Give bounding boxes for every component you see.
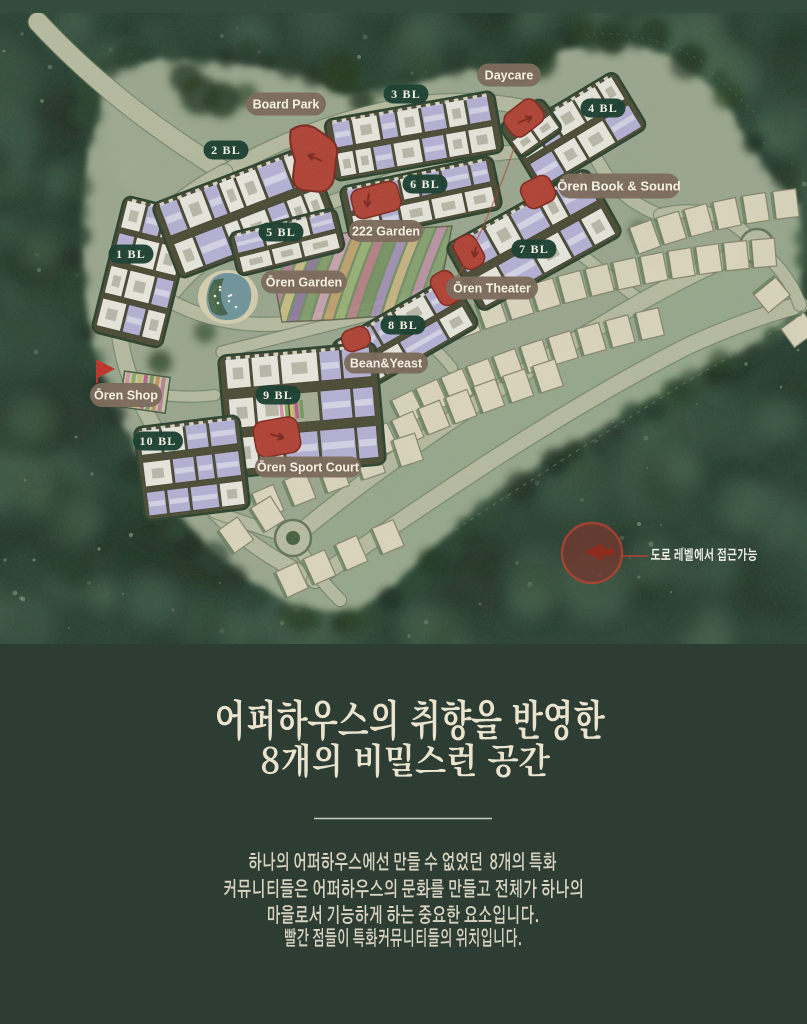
- svg-text:9 BL: 9 BL: [263, 388, 293, 402]
- svg-text:6 BL: 6 BL: [410, 177, 440, 191]
- svg-text:5 BL: 5 BL: [266, 225, 296, 239]
- svg-text:Ōren Book & Sound: Ōren Book & Sound: [557, 179, 681, 194]
- svg-text:3 BL: 3 BL: [391, 87, 421, 101]
- svg-text:Ōren Shop: Ōren Shop: [94, 388, 158, 402]
- svg-text:2 BL: 2 BL: [211, 143, 241, 157]
- svg-text:Board Park: Board Park: [253, 97, 320, 111]
- svg-text:Daycare: Daycare: [485, 68, 534, 82]
- svg-text:Bean&Yeast: Bean&Yeast: [350, 356, 423, 370]
- svg-text:Ōren Theater: Ōren Theater: [453, 281, 531, 295]
- svg-text:222 Garden: 222 Garden: [352, 224, 420, 238]
- svg-text:Ōren Garden: Ōren Garden: [266, 275, 342, 289]
- svg-text:Ōren Sport Court: Ōren Sport Court: [257, 460, 360, 474]
- svg-text:10 BL: 10 BL: [139, 434, 176, 448]
- svg-text:1 BL: 1 BL: [116, 247, 146, 261]
- svg-text:7 BL: 7 BL: [519, 242, 549, 256]
- svg-text:4 BL: 4 BL: [588, 101, 618, 115]
- svg-text:8 BL: 8 BL: [388, 318, 418, 332]
